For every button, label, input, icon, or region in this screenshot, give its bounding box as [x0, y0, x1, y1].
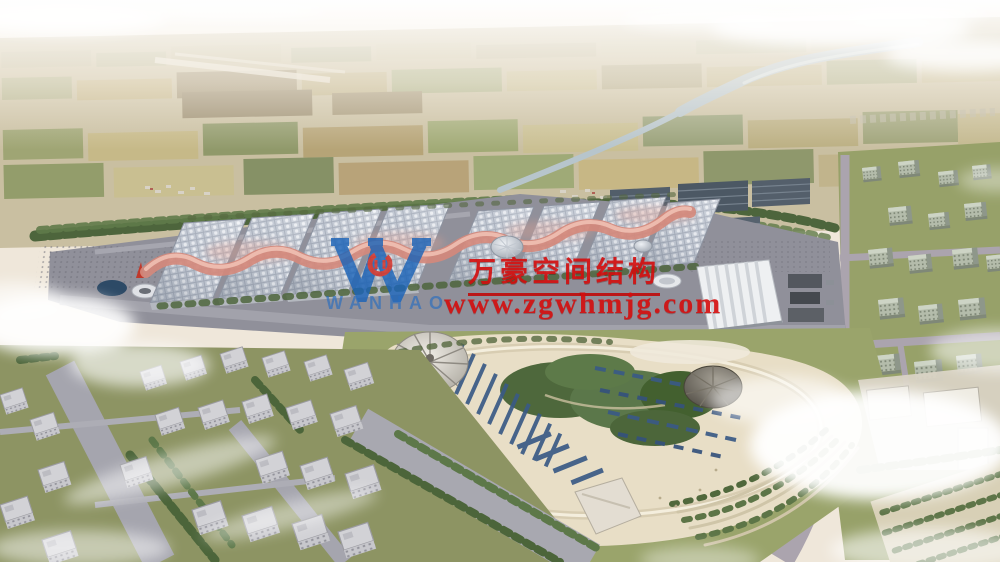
- aerial-rendering: WANHAO 万豪空间结构 www.zgwhmjg.com: [0, 0, 1000, 562]
- pond: [97, 280, 127, 296]
- watermark-logo-text: WANHAO: [326, 293, 450, 314]
- website-watermark: www.zgwhmjg.com: [444, 287, 722, 321]
